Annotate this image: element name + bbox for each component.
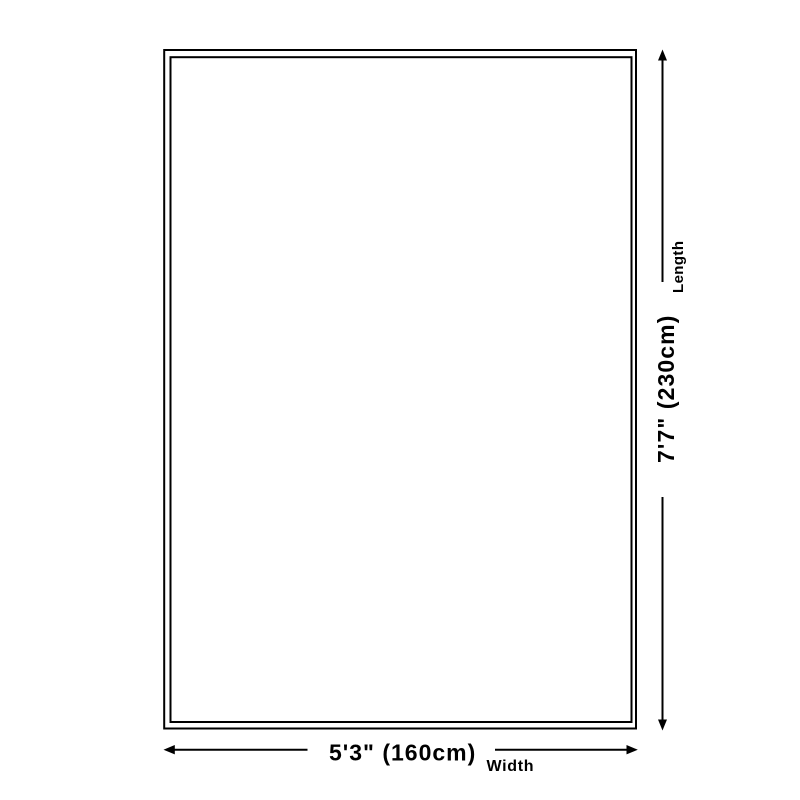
- svg-text:7'7" (230cm): 7'7" (230cm): [653, 315, 679, 463]
- svg-text:Width: Width: [487, 758, 535, 775]
- svg-text:5'3" (160cm): 5'3" (160cm): [329, 740, 476, 766]
- svg-text:Length: Length: [670, 241, 687, 293]
